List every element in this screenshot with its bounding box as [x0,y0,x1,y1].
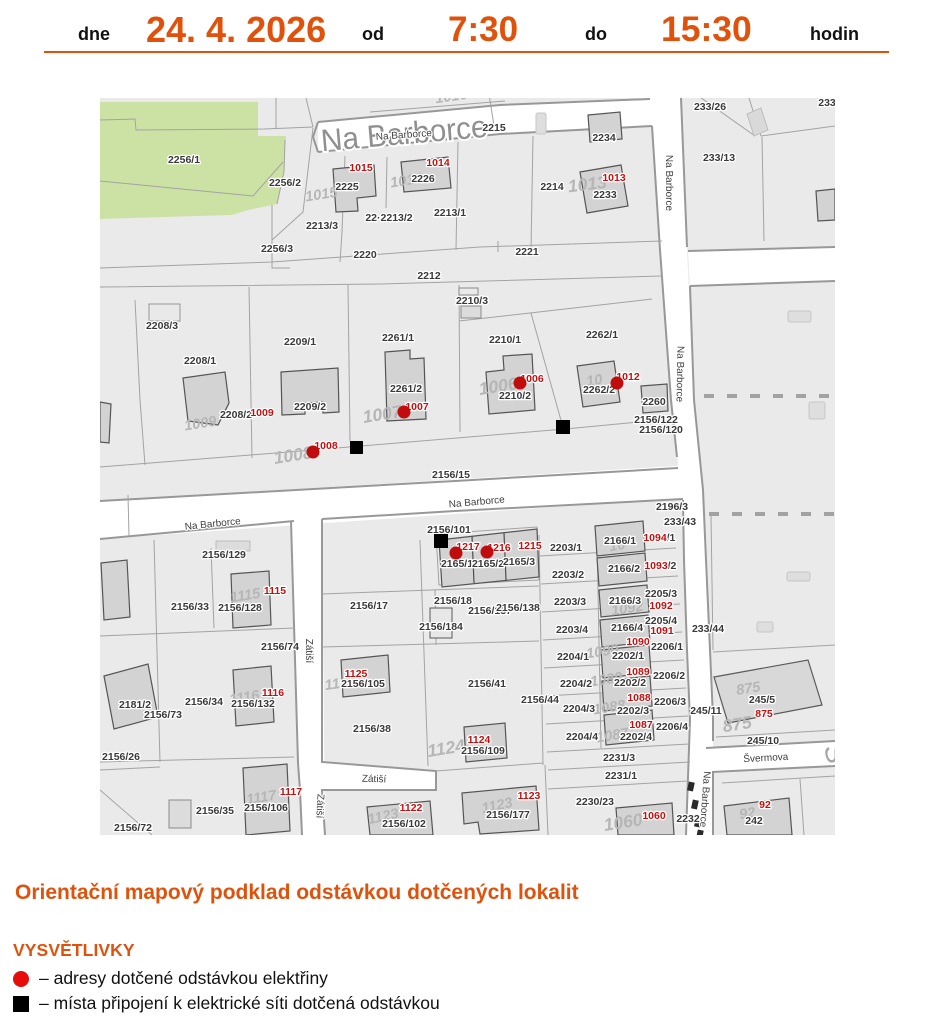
svg-text:245/5: 245/5 [749,694,775,706]
svg-text:2220: 2220 [353,249,377,261]
svg-text:Na Barborce: Na Barborce [674,346,686,403]
svg-text:Zátiší: Zátiší [362,774,387,786]
svg-text:1125: 1125 [345,668,368,680]
svg-text:2230/23: 2230/23 [576,796,614,808]
svg-text:242: 242 [745,815,763,827]
svg-text:2156/41: 2156/41 [468,678,506,690]
svg-text:233/44: 233/44 [692,623,724,635]
svg-text:2204/1: 2204/1 [557,651,589,663]
svg-text:1013: 1013 [602,172,626,184]
svg-text:1094: 1094 [643,532,667,544]
svg-text:2261/1: 2261/1 [382,332,414,344]
svg-text:2225: 2225 [335,181,359,193]
svg-text:2203/4: 2203/4 [556,624,588,636]
svg-text:1088: 1088 [627,692,651,704]
svg-text:1122: 1122 [400,802,423,814]
svg-text:2256/1: 2256/1 [168,154,200,166]
svg-text:1090: 1090 [626,636,650,648]
svg-text:1092: 1092 [649,600,673,612]
svg-text:1123: 1123 [518,790,541,802]
svg-text:2156/18: 2156/18 [434,595,472,607]
svg-text:2165/3: 2165/3 [503,556,535,568]
svg-text:2202/4: 2202/4 [620,731,652,743]
svg-text:2156/15: 2156/15 [432,469,470,481]
svg-text:2231/3: 2231/3 [603,752,635,764]
svg-text:2166/2: 2166/2 [608,563,640,575]
svg-text:2166/1: 2166/1 [604,535,636,547]
svg-text:1215: 1215 [518,540,542,552]
svg-text:2205/3: 2205/3 [645,588,677,600]
svg-text:2202/3: 2202/3 [617,705,649,717]
svg-text:2215: 2215 [482,122,506,134]
svg-text:22·2213/2: 22·2213/2 [365,212,412,224]
svg-text:1015: 1015 [349,162,373,174]
svg-text:2156/102: 2156/102 [382,818,426,830]
svg-text:1116: 1116 [262,687,284,699]
svg-text:1009: 1009 [250,407,274,419]
svg-text:2206/4: 2206/4 [656,721,688,733]
svg-text:2213/1: 2213/1 [434,207,466,219]
svg-text:2232: 2232 [676,813,700,825]
svg-text:2210/2: 2210/2 [499,390,531,402]
svg-text:2212: 2212 [417,270,441,282]
svg-text:2206/1: 2206/1 [651,641,683,653]
svg-text:2156/72: 2156/72 [114,822,152,834]
svg-text:2196/3: 2196/3 [656,501,688,513]
svg-text:2156/74: 2156/74 [261,641,299,653]
svg-text:245/11: 245/11 [690,705,722,717]
svg-text:2233: 2233 [593,189,617,201]
svg-text:2213/3: 2213/3 [306,220,338,232]
svg-text:Zátiší: Zátiší [303,639,314,664]
svg-text:2221: 2221 [515,246,539,258]
svg-text:233/43: 233/43 [664,516,696,528]
svg-text:Na Barborce: Na Barborce [663,155,674,212]
svg-text:2202/2: 2202/2 [614,677,646,689]
svg-text:2204/3: 2204/3 [563,703,595,715]
svg-text:2203/1: 2203/1 [550,542,582,554]
svg-text:2181/2: 2181/2 [119,699,151,711]
svg-text:2209/2: 2209/2 [294,401,326,413]
svg-text:2156/120: 2156/120 [639,424,683,436]
svg-text:2156/44: 2156/44 [521,694,559,706]
svg-text:/1: /1 [667,532,676,544]
svg-text:2234: 2234 [592,132,616,144]
svg-text:2166/3: 2166/3 [609,595,641,607]
svg-text:2262/1: 2262/1 [586,329,618,341]
svg-text:233/13: 233/13 [703,152,735,164]
svg-text:2231/1: 2231/1 [605,770,637,782]
svg-text:875: 875 [755,708,773,720]
svg-text:2203/2: 2203/2 [552,569,584,581]
svg-text:2156/184: 2156/184 [419,621,463,633]
svg-text:2156/38: 2156/38 [353,723,391,735]
svg-text:1014: 1014 [426,157,450,169]
svg-text:2165/1: 2165/1 [441,558,473,570]
svg-text:2156/33: 2156/33 [171,601,209,613]
svg-text:1091: 1091 [650,625,674,637]
svg-text:11: 11 [324,676,341,694]
svg-text:2210/3: 2210/3 [456,295,488,307]
svg-text:2206/2: 2206/2 [653,670,685,682]
svg-text:2156/26: 2156/26 [102,751,140,763]
svg-text:2208/2: 2208/2 [220,409,252,421]
svg-text:2156/129: 2156/129 [202,549,246,561]
svg-text:2156/128: 2156/128 [218,602,262,614]
svg-text:2156/101: 2156/101 [427,524,471,536]
svg-text:2156/17: 2156/17 [350,600,388,612]
svg-text:2210/1: 2210/1 [489,334,521,346]
svg-text:92: 92 [759,799,771,811]
svg-text:1093: 1093 [644,560,668,572]
svg-text:245/10: 245/10 [747,735,779,747]
svg-text:Zátiší: Zátiší [313,794,325,819]
svg-text:2214: 2214 [540,181,564,193]
svg-text:2209/1: 2209/1 [284,336,316,348]
svg-text:2156/34: 2156/34 [185,696,223,708]
svg-text:2202/1: 2202/1 [612,650,644,662]
svg-text:1115: 1115 [264,585,286,597]
svg-text:2204/2: 2204/2 [560,678,592,690]
svg-text:1124: 1124 [468,734,491,746]
svg-text:1117: 1117 [280,786,302,798]
svg-text:2261/2: 2261/2 [390,383,422,395]
svg-text:233: 233 [818,97,836,109]
svg-text:2226: 2226 [411,173,435,185]
svg-text:2256/2: 2256/2 [269,177,301,189]
svg-text:2204/4: 2204/4 [566,731,598,743]
svg-text:/2: /2 [668,560,677,572]
svg-text:2156/35: 2156/35 [196,805,234,817]
svg-text:2166/4: 2166/4 [611,622,643,634]
svg-text:2156/109: 2156/109 [461,745,505,757]
svg-text:2156/177: 2156/177 [486,809,530,821]
svg-text:1060: 1060 [642,810,666,822]
svg-text:2165/2: 2165/2 [472,558,504,570]
svg-text:2203/3: 2203/3 [554,596,586,608]
svg-text:2208/1: 2208/1 [184,355,216,367]
svg-text:2206/3: 2206/3 [654,696,686,708]
svg-text:2156/138: 2156/138 [496,602,540,614]
svg-text:1089: 1089 [626,666,650,678]
svg-text:2256/3: 2256/3 [261,243,293,255]
svg-text:233/26: 233/26 [694,101,726,113]
svg-text:2156/106: 2156/106 [244,802,288,814]
svg-text:2262/2: 2262/2 [583,384,615,396]
svg-text:2260: 2260 [642,396,666,408]
svg-text:1087: 1087 [629,719,653,731]
svg-text:2156/132: 2156/132 [231,698,275,710]
svg-text:2208/3: 2208/3 [146,320,178,332]
